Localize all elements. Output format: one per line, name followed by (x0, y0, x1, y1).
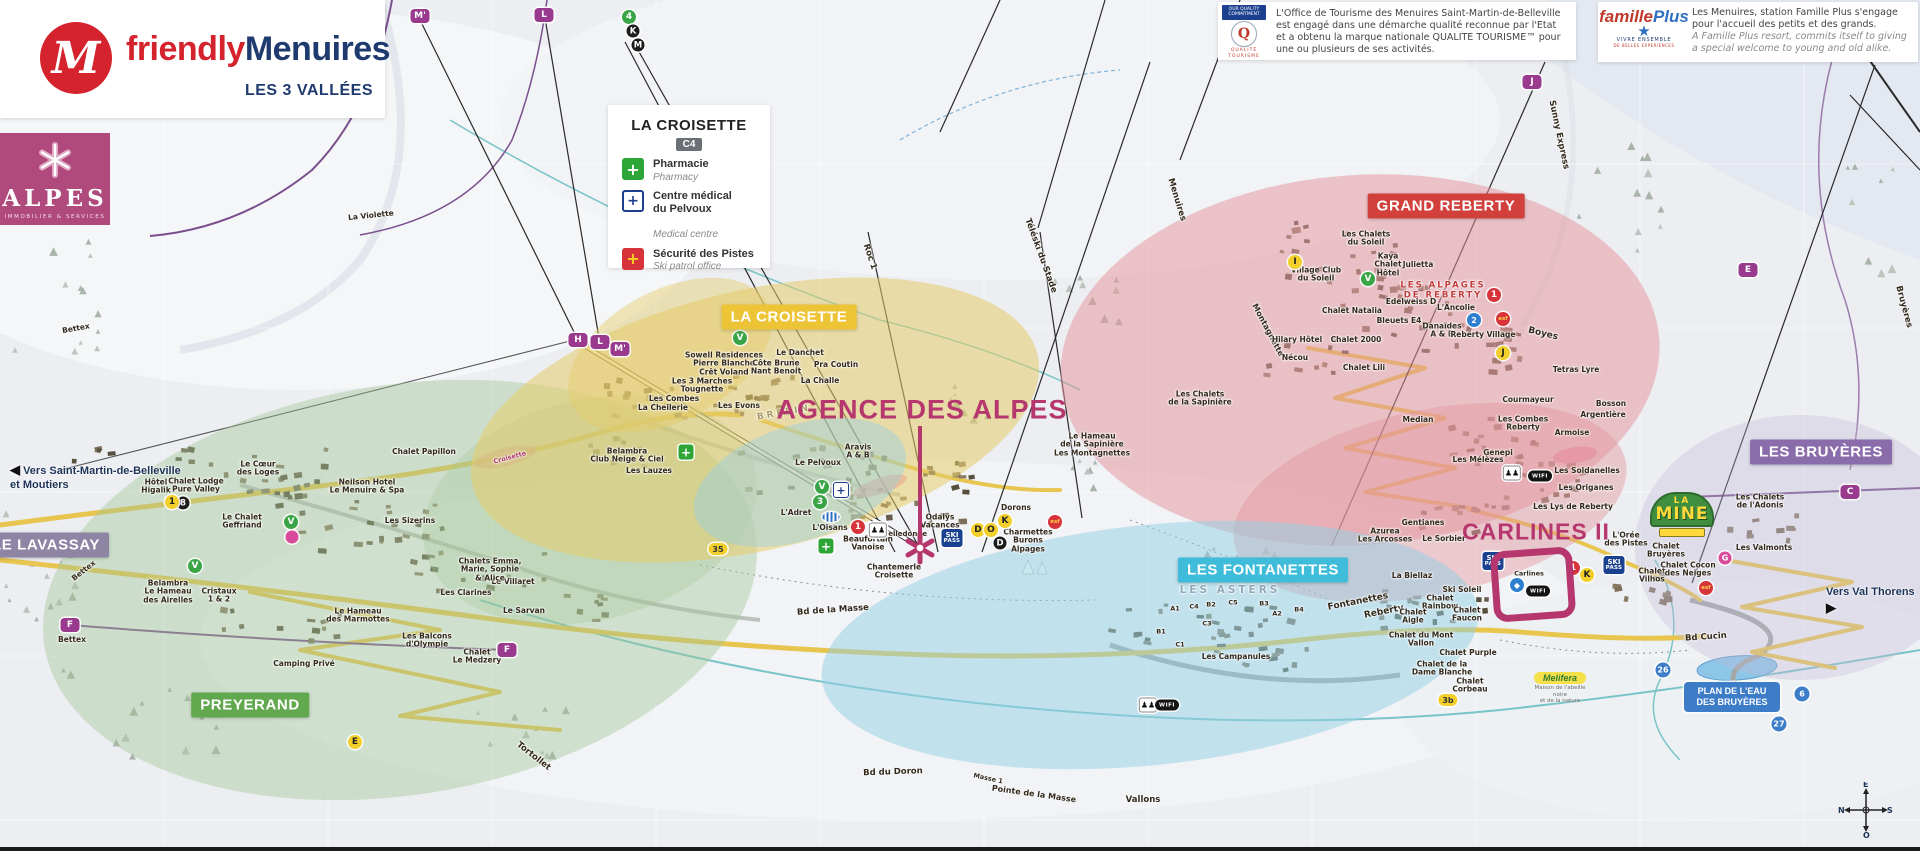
legend-patrol-fr: Sécurité des Pistes (653, 248, 754, 260)
yellow-badge: E (348, 735, 362, 749)
wifi-badge: WIFI (1528, 471, 1552, 482)
yellow-badge: J (1496, 346, 1510, 360)
wordmark-friendly: friendly (126, 30, 245, 68)
blue-badge: 2 (1467, 313, 1481, 327)
la-mine-logo: LA MINE (1650, 492, 1714, 542)
road-number-badge: 3b (1438, 694, 1457, 706)
wordmark-menuires: Menuires (245, 30, 390, 68)
la-mine-arch: LA MINE (1650, 492, 1714, 527)
legend-medical-en: Medical centre (653, 229, 718, 240)
black-badge: M (632, 39, 645, 52)
people-icon: ♟♟ (869, 523, 887, 538)
black-badge: D (994, 537, 1007, 550)
legend-grid-ref-badge: C4 (676, 138, 702, 151)
legend-pharmacy-en: Pharmacy (653, 172, 698, 183)
ski-pass-badge: SKIPASS (942, 529, 963, 547)
alpes-subtitle: IMMOBILIER & SERVICES (0, 214, 110, 220)
green-badge: V (733, 331, 747, 345)
banner-la-croisette: LA CROISETTE (722, 305, 857, 330)
vers-right-text: Vers Val Thorens (1826, 586, 1915, 598)
qualite-q-icon: Q (1231, 21, 1257, 47)
qualite-tourisme-text: L'Office de Tourisme des Menuires Saint-… (1270, 2, 1576, 60)
alpes-star-icon (36, 141, 74, 179)
melifera-label: Melifera Maison de l'abeille noire et de… (1534, 672, 1586, 705)
green-badge: 4 (622, 10, 636, 24)
lift-badge: L (591, 335, 610, 349)
plan-eau-line1: PLAN DE L'EAU (1684, 686, 1780, 697)
black-badge: K (627, 25, 640, 38)
carlines-ii-highlight-frame (1490, 546, 1577, 623)
banner-les-fontanettes: LES FONTANETTES (1178, 558, 1348, 583)
friendly-menuires-wordmark: friendlyMenuires (126, 30, 390, 69)
banner-les-bruyeres: LES BRUYÈRES (1750, 440, 1892, 465)
red-badge: 1 (1487, 288, 1501, 302)
melifera-subtitle: Maison de l'abeille noire et de la natur… (1534, 685, 1586, 705)
legend-row-ski-patrol: + Sécurité des Pistes Ski patrol office (622, 248, 770, 273)
green-badge: V (188, 559, 202, 573)
famille-plus-card: famillePlus ★ VIVRE ENSEMBLE DE BELLES E… (1598, 2, 1918, 62)
vers-left-line1: Vers Saint-Martin-de-Belleville (23, 465, 181, 477)
vers-saint-martin-label: ◀ Vers Saint-Martin-de-Belleville et Mou… (10, 462, 181, 493)
lift-badge: F (498, 643, 517, 657)
banner-grand-reberty: GRAND REBERTY (1368, 194, 1525, 219)
lift-badge: L (535, 8, 554, 22)
famille-plus-sub2: DE BELLES EXPERIENCES (1598, 43, 1690, 48)
agence-des-alpes-logo-card: ALPES IMMOBILIER & SERVICES (0, 133, 110, 225)
lift-badge: E (1739, 263, 1758, 277)
banner-preyerand: PREYERAND (191, 693, 309, 718)
yellow-badge: K (998, 514, 1012, 528)
svg-text:O: O (1863, 831, 1870, 838)
svg-text:E: E (1863, 782, 1868, 789)
yellow-badge: 1 (165, 495, 179, 509)
esf-badge: esf (1699, 581, 1713, 595)
legend-row-pharmacy: + Pharmacie Pharmacy (622, 158, 770, 183)
svg-text:N: N (1838, 806, 1845, 815)
melifera-sub1: Maison de l'abeille noire (1535, 685, 1586, 698)
legend-card: LA CROISETTE C4 + Pharmacie Pharmacy + C… (608, 105, 770, 268)
road-number-badge: 6 (1795, 687, 1810, 702)
ski-patrol-cross-icon: + (622, 248, 644, 270)
medical-cross-icon: + (833, 482, 849, 498)
vers-left-line2: et Moutiers (10, 479, 69, 491)
les-3-vallees-tagline: LES 3 VALLÉES (245, 82, 373, 100)
ski-pass-badge: SKIPASS (1604, 556, 1625, 574)
medical-cross-icon: + (622, 190, 644, 212)
plan-eau-line2: DES BRUYÈRES (1684, 697, 1780, 708)
map-terrain-decor (0, 0, 1920, 851)
green-badge: 3 (813, 495, 827, 509)
legend-medical-fr: Centre médical du Pelvoux (653, 190, 732, 215)
red-badge: 1 (851, 520, 865, 534)
green-badge: V (1361, 272, 1375, 286)
right-arrow-icon: ▶ (1826, 600, 1836, 615)
famille-plus-text: Les Menuires, station Famille Plus s'eng… (1690, 2, 1918, 62)
pharmacy-cross-icon: + (819, 539, 834, 554)
famille-plus-star-icon: ★ (1598, 27, 1690, 36)
map-bottom-border (0, 847, 1920, 851)
pool-icon (823, 512, 840, 522)
wifi-badge: WIFI (1155, 700, 1179, 711)
esf-badge: esf (1048, 515, 1062, 529)
qt-badge-line2: COMMITMENT (1228, 12, 1259, 17)
yellow-badge: K (1580, 568, 1594, 582)
vers-val-thorens-label: Vers Val Thorens ▶ (1826, 586, 1920, 617)
agence-des-alpes-callout: AGENCE DES ALPES (776, 395, 1067, 426)
famille-plus-text-en: A Famille Plus resort, commits itself to… (1692, 31, 1907, 54)
lift-badge: C (1841, 485, 1860, 499)
qualite-tourisme-logo: OUR QUALITY COMMITMENT Q QUALITÉ TOURISM… (1218, 2, 1270, 60)
famille-plus-logo: famillePlus ★ VIVRE ENSEMBLE DE BELLES E… (1598, 2, 1690, 62)
pharmacy-cross-icon: + (622, 158, 644, 180)
la-mine-line2: MINE (1652, 506, 1712, 523)
green-badge: V (815, 480, 829, 494)
pharmacy-cross-icon: + (679, 445, 694, 460)
la-mine-banner (1659, 528, 1705, 537)
famille-plus-plus: Plus (1653, 7, 1689, 26)
people-icon: ♟♟ (1503, 466, 1521, 481)
qt-logo-line1: QUALITÉ (1231, 48, 1257, 53)
road-number-badge: 27 (1772, 717, 1787, 732)
carlines-ii-callout: CARLINES II (1462, 519, 1610, 546)
legend-pharmacy-fr: Pharmacie (653, 158, 709, 170)
svg-text:S: S (1887, 806, 1893, 815)
yellow-badge: I (1288, 255, 1302, 269)
quality-commitment-badge: OUR QUALITY COMMITMENT (1222, 5, 1266, 20)
lift-badge: H (569, 333, 588, 347)
lift-badge: J (1523, 75, 1542, 89)
agence-star-marker-icon (903, 531, 937, 565)
banner-le-lavassay: LE LAVASSAY (0, 533, 109, 558)
qualite-tourisme-card: OUR QUALITY COMMITMENT Q QUALITÉ TOURISM… (1218, 2, 1576, 60)
magenta-badge: G (1719, 552, 1732, 565)
legend-row-medical: + Centre médical du Pelvoux Medical cent… (622, 190, 770, 241)
plan-de-leau-label: PLAN DE L'EAU DES BRUYÈRES (1684, 682, 1780, 712)
left-arrow-icon: ◀ (10, 462, 20, 477)
famille-plus-text-fr: Les Menuires, station Famille Plus s'eng… (1692, 7, 1898, 30)
road-number-badge: 26 (1656, 663, 1671, 678)
agence-pointer-line (918, 426, 922, 540)
legend-title: LA CROISETTE (608, 117, 770, 134)
compass-icon: E S O N (1838, 782, 1894, 838)
legend-patrol-en: Ski patrol office (653, 261, 721, 272)
magenta-badge (286, 531, 299, 544)
melifera-pill: Melifera (1534, 672, 1586, 684)
lift-badge: M' (611, 342, 630, 356)
green-badge: V (284, 515, 298, 529)
qualite-tourisme-logo-text: QUALITÉ TOURISME (1218, 48, 1270, 60)
lift-badge: F (61, 618, 80, 632)
lift-badge: M' (411, 9, 430, 23)
esf-badge: esf (1496, 312, 1510, 326)
qt-logo-line2: TOURISME (1228, 54, 1260, 59)
melifera-sub2: et de la nature (1540, 698, 1581, 704)
road-number-badge: 35 (708, 543, 727, 555)
alpes-title: ALPES (0, 185, 110, 212)
friendly-menuires-logo-card: M friendlyMenuires LES 3 VALLÉES (0, 0, 385, 118)
resort-map: Le Cœur des LogesHôtel HigalikChalet Lod… (0, 0, 1920, 851)
yellow-badge: D (971, 523, 985, 537)
menuires-m-logo-icon: M (40, 22, 112, 94)
yellow-badge: O (984, 523, 998, 537)
